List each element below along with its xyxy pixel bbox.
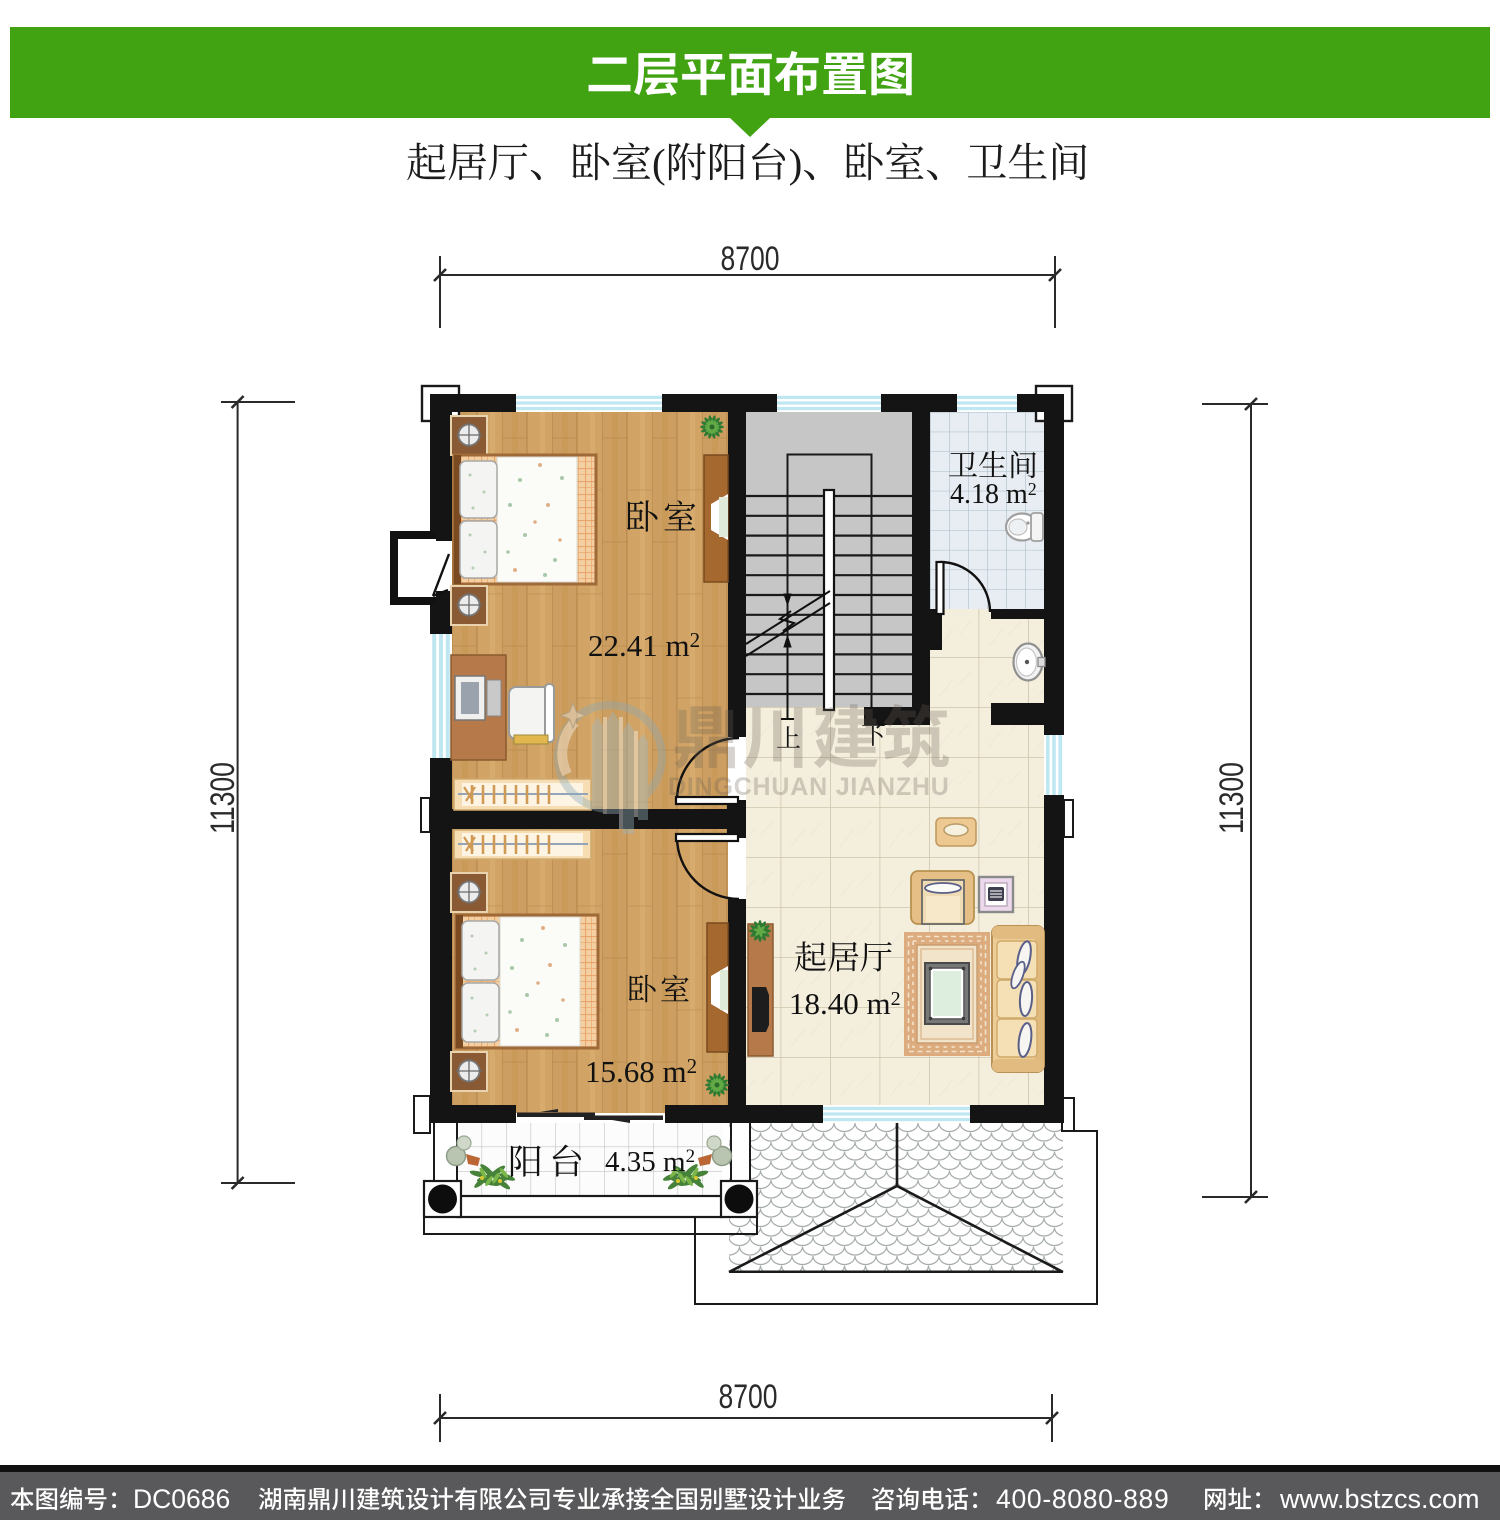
- svg-text:15.68 m2: 15.68 m2: [585, 1054, 697, 1089]
- svg-text:DC0686: DC0686: [133, 1484, 230, 1514]
- svg-text:8700: 8700: [719, 1378, 778, 1416]
- svg-text:4.35 m2: 4.35 m2: [605, 1146, 695, 1178]
- svg-text:8700: 8700: [721, 240, 780, 278]
- svg-text:18.40 m2: 18.40 m2: [789, 986, 901, 1021]
- svg-text:11300: 11300: [204, 762, 242, 834]
- svg-text:4.18 m2: 4.18 m2: [950, 479, 1037, 510]
- svg-text:400-8080-889: 400-8080-889: [996, 1484, 1169, 1514]
- svg-text:11300: 11300: [1213, 762, 1251, 834]
- svg-text:DINGCHUAN JIANZHU: DINGCHUAN JIANZHU: [668, 773, 950, 801]
- svg-text:www.bstzcs.com: www.bstzcs.com: [1279, 1484, 1480, 1514]
- svg-text:22.41 m2: 22.41 m2: [588, 628, 700, 663]
